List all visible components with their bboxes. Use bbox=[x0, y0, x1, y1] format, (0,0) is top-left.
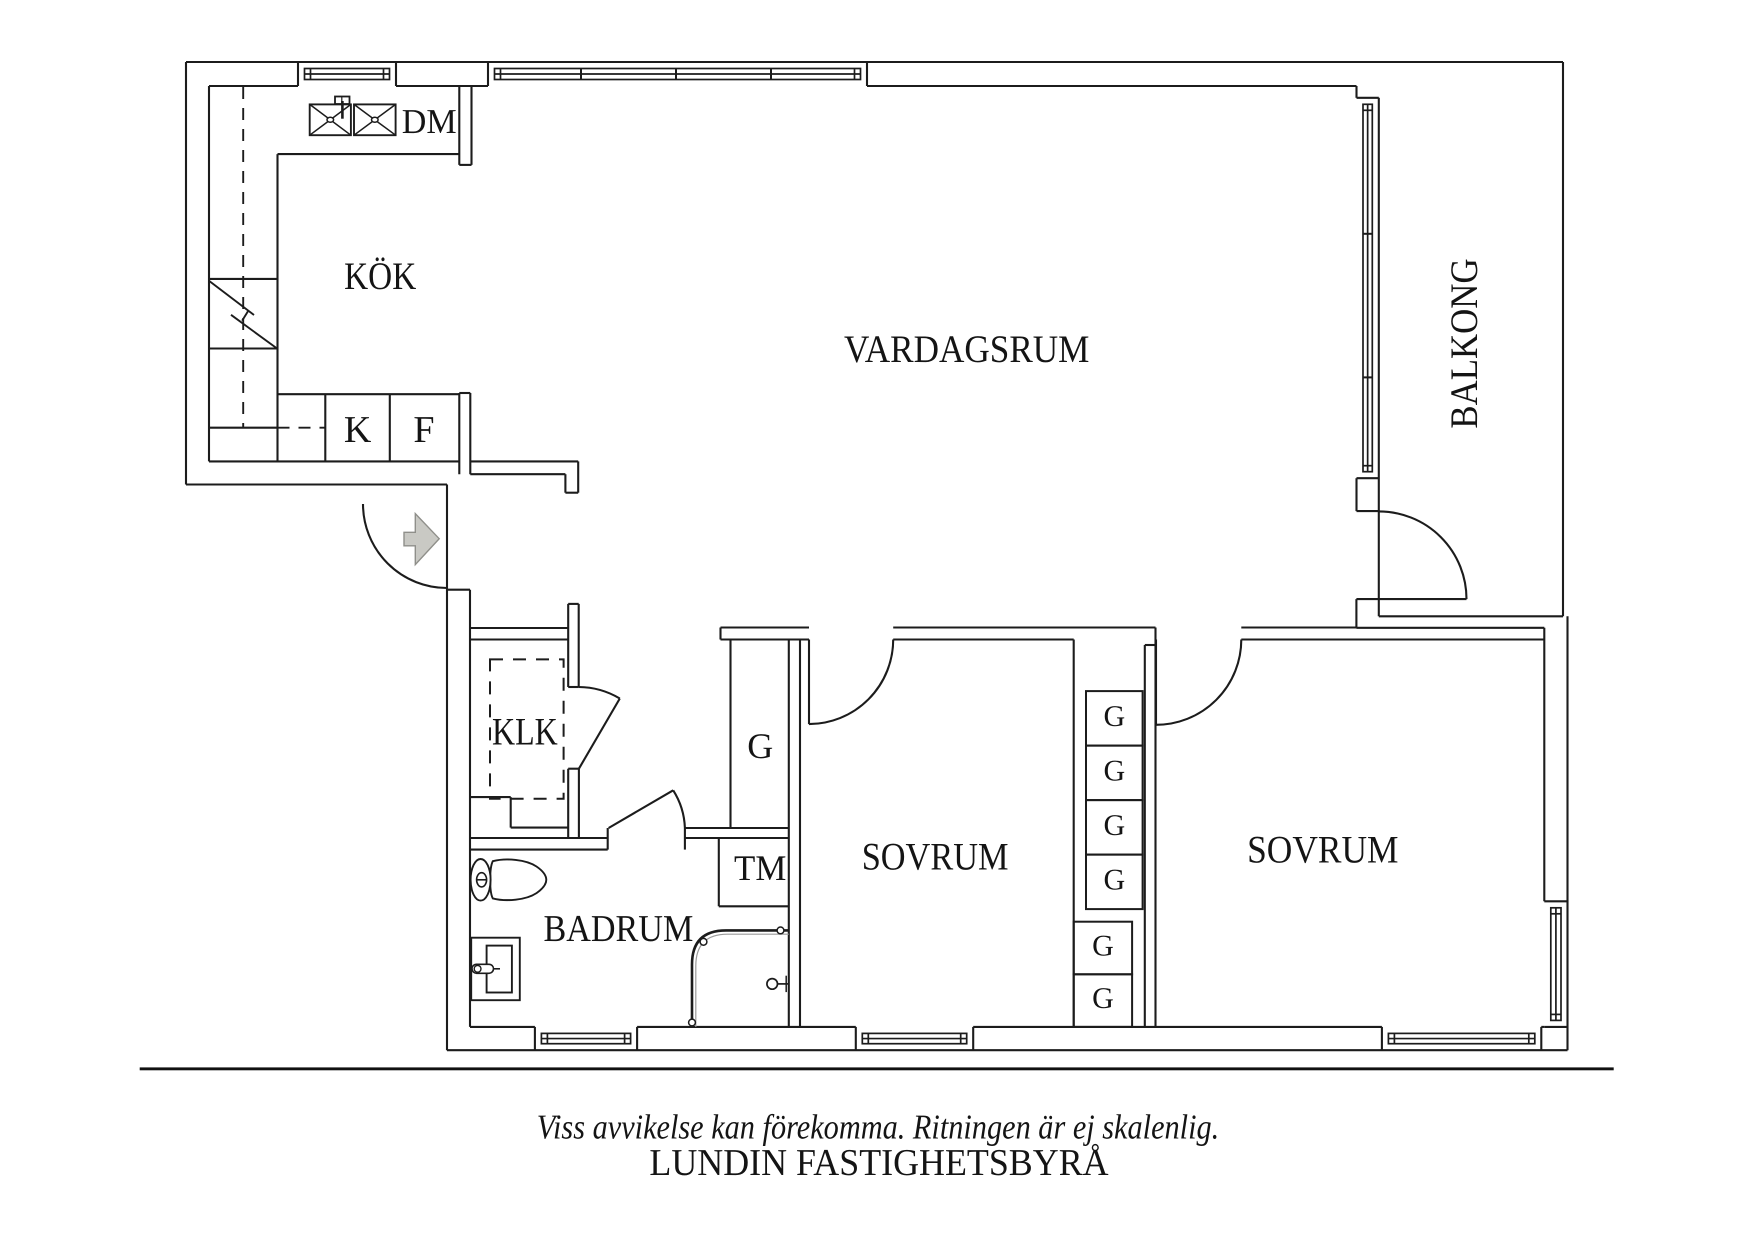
svg-text:G: G bbox=[1103, 863, 1125, 896]
svg-text:KLK: KLK bbox=[492, 711, 558, 754]
svg-text:TM: TM bbox=[734, 848, 786, 888]
svg-text:SOVRUM: SOVRUM bbox=[862, 835, 1009, 878]
svg-text:G: G bbox=[1103, 700, 1125, 733]
svg-text:K: K bbox=[344, 409, 372, 451]
svg-text:BADRUM: BADRUM bbox=[544, 908, 694, 950]
svg-text:DM: DM bbox=[402, 102, 457, 141]
svg-text:KÖK: KÖK bbox=[344, 255, 416, 298]
svg-text:F: F bbox=[413, 409, 434, 451]
svg-text:G: G bbox=[1103, 754, 1125, 787]
svg-text:G: G bbox=[747, 726, 773, 766]
svg-text:Viss avvikelse kan förekomma.: Viss avvikelse kan förekomma. Ritningen … bbox=[537, 1108, 1220, 1147]
svg-text:G: G bbox=[1092, 982, 1114, 1015]
svg-text:LUNDIN FASTIGHETSBYRÅ: LUNDIN FASTIGHETSBYRÅ bbox=[649, 1142, 1109, 1184]
svg-text:SOVRUM: SOVRUM bbox=[1247, 828, 1398, 871]
svg-text:BALKONG: BALKONG bbox=[1443, 258, 1486, 428]
svg-text:G: G bbox=[1092, 930, 1114, 963]
svg-text:G: G bbox=[1103, 809, 1125, 842]
svg-text:VARDAGSRUM: VARDAGSRUM bbox=[844, 328, 1090, 371]
